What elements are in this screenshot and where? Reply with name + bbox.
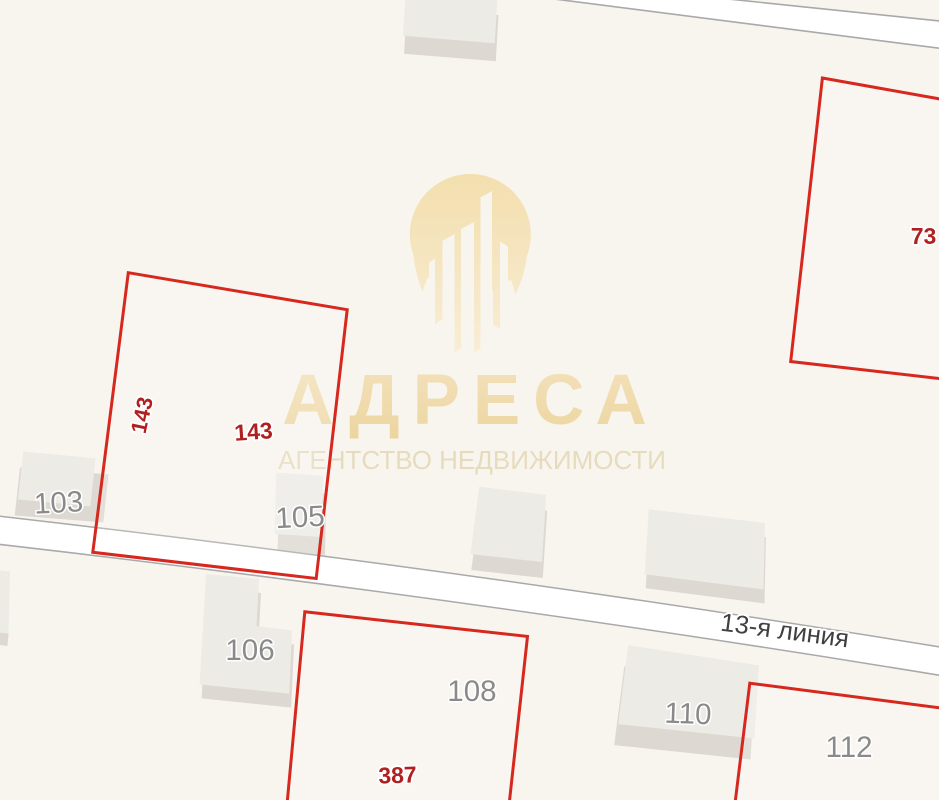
svg-text:105: 105 [275,500,326,536]
svg-text:112: 112 [825,731,872,764]
svg-text:108: 108 [447,675,496,708]
svg-text:110: 110 [664,697,712,732]
svg-text:73: 73 [911,223,937,249]
svg-text:106: 106 [225,634,274,667]
svg-text:387: 387 [378,761,417,788]
svg-text:АГЕНТСТВО НЕДВИЖИМОСТИ: АГЕНТСТВО НЕДВИЖИМОСТИ [278,445,666,475]
svg-text:103: 103 [33,485,84,521]
svg-text:143: 143 [233,417,273,446]
